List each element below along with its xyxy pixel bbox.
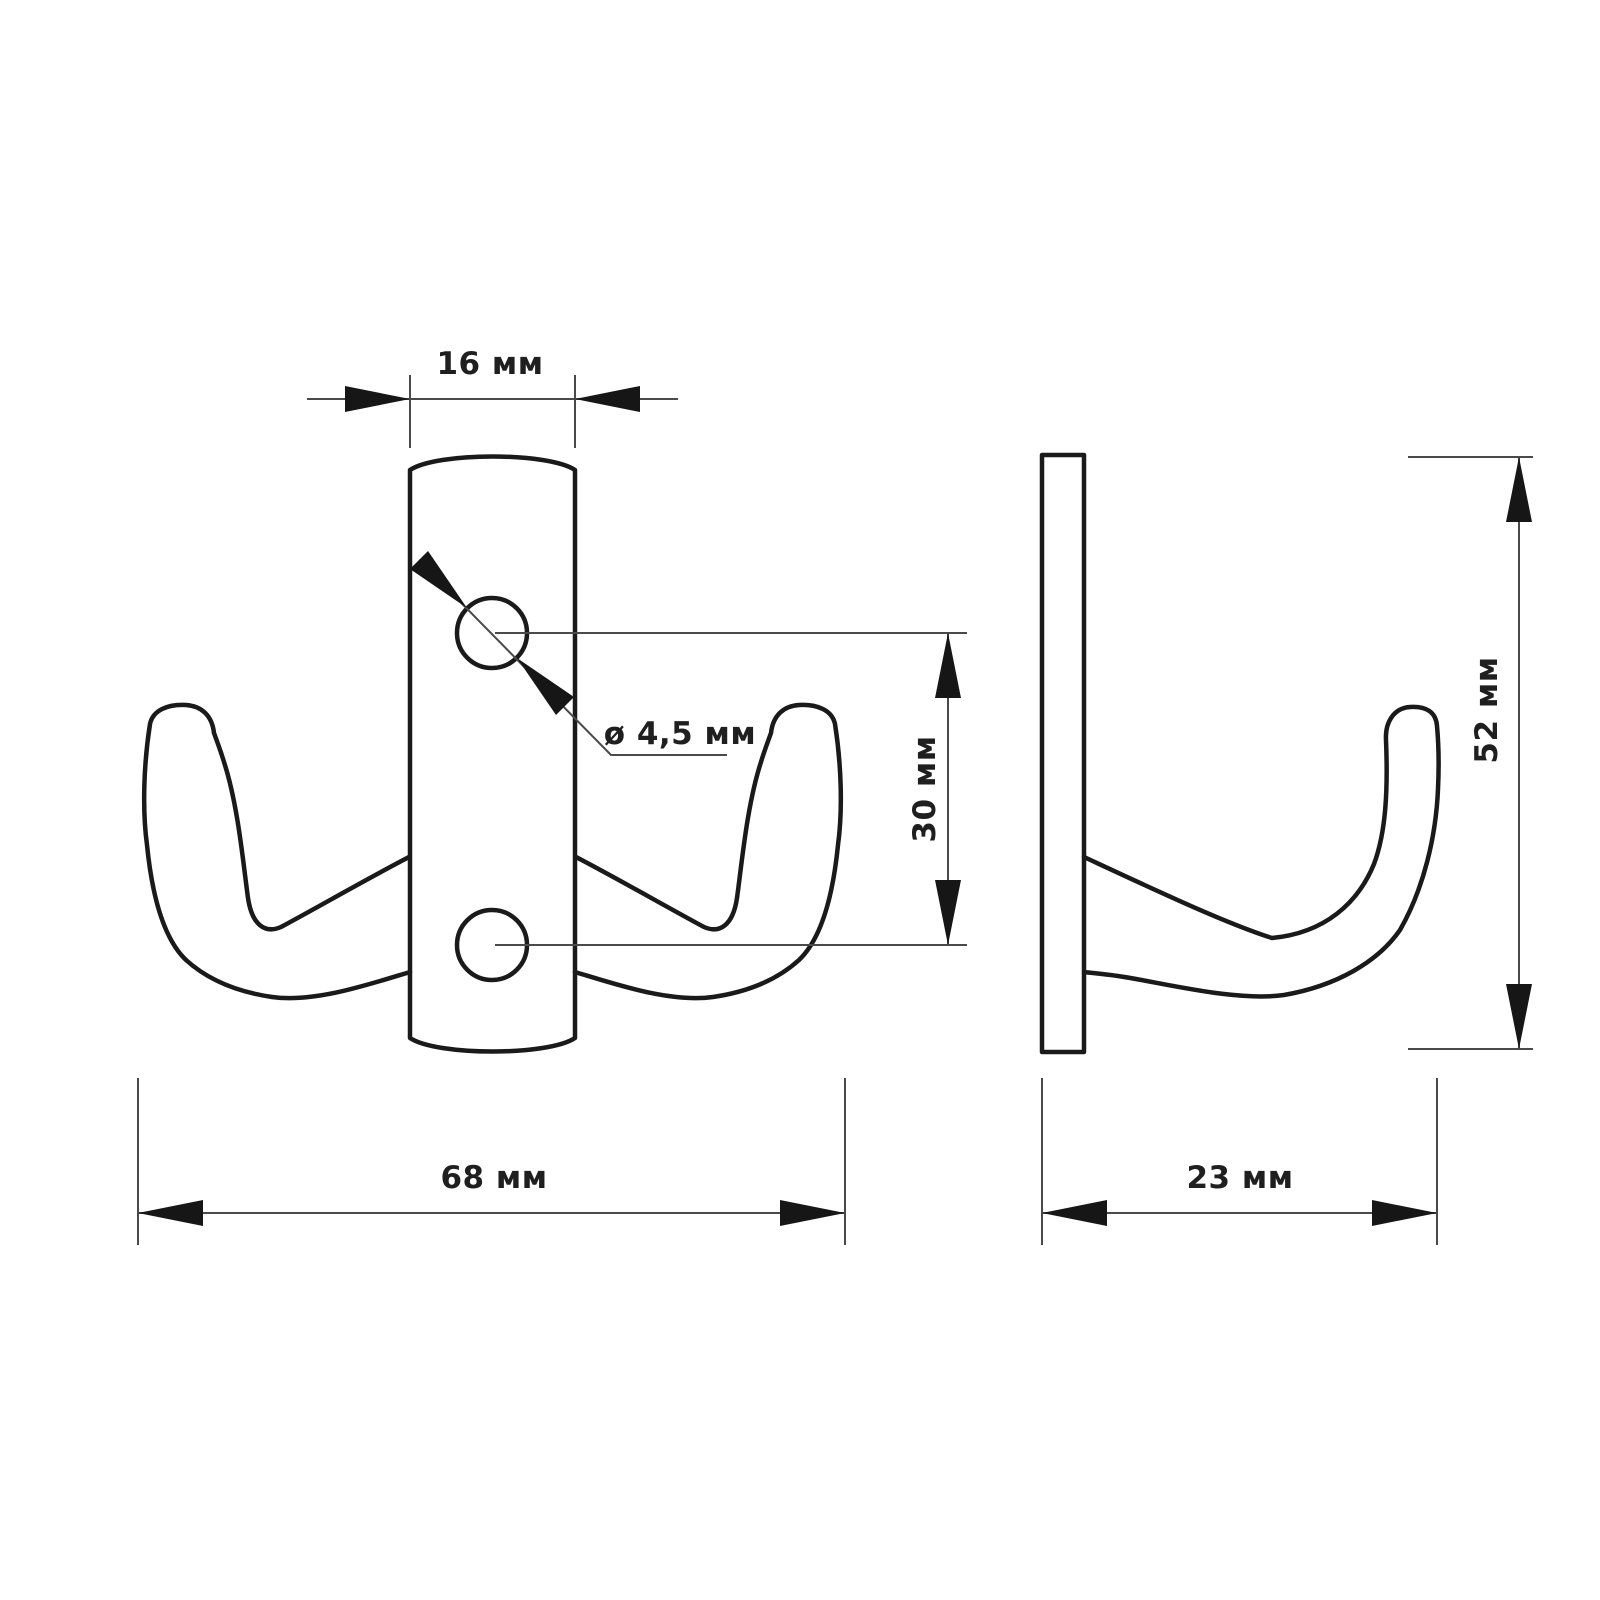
dim-hole-spacing-label: 30 мм [907,735,943,842]
dim-total-width: 68 мм [138,1078,845,1245]
dim-plate-width-label: 16 мм [436,346,543,382]
arrowhead-left-icon [575,386,640,412]
technical-drawing-page: 16 мм ø 4,5 мм 30 мм 68 мм 52 мм [0,0,1600,1600]
front-left-hook-outline [144,705,410,998]
technical-drawing-canvas: 16 мм ø 4,5 мм 30 мм 68 мм 52 мм [0,0,1600,1600]
side-view [1042,455,1439,1052]
dim-plate-width: 16 мм [307,346,678,448]
arrowhead-up-icon [935,633,961,698]
dim-total-height: 52 мм [1408,457,1533,1049]
arrowhead-right-icon [345,386,410,412]
dim-total-width-label: 68 мм [440,1160,547,1196]
side-hook-outline [1084,707,1439,997]
arrowhead-right-icon [780,1200,845,1226]
arrowhead-down-icon [1506,984,1532,1049]
arrowhead-diagonal-down-icon [410,551,467,608]
front-view [144,457,841,1052]
arrowhead-up-icon [1506,457,1532,522]
dim-total-height-label: 52 мм [1469,656,1505,763]
dim-total-depth: 23 мм [1042,1078,1437,1245]
arrowhead-down-icon [935,880,961,945]
arrowhead-right-icon [1372,1200,1437,1226]
arrowhead-diagonal-up-icon [517,658,574,715]
dim-total-depth-label: 23 мм [1186,1160,1293,1196]
arrowhead-left-icon [138,1200,203,1226]
side-plate-outline [1042,455,1084,1052]
arrowhead-left-icon [1042,1200,1107,1226]
dim-hole-spacing: 30 мм [495,633,967,945]
front-plate-outline [410,457,575,1052]
dim-hole-diameter-label: ø 4,5 мм [604,716,756,752]
